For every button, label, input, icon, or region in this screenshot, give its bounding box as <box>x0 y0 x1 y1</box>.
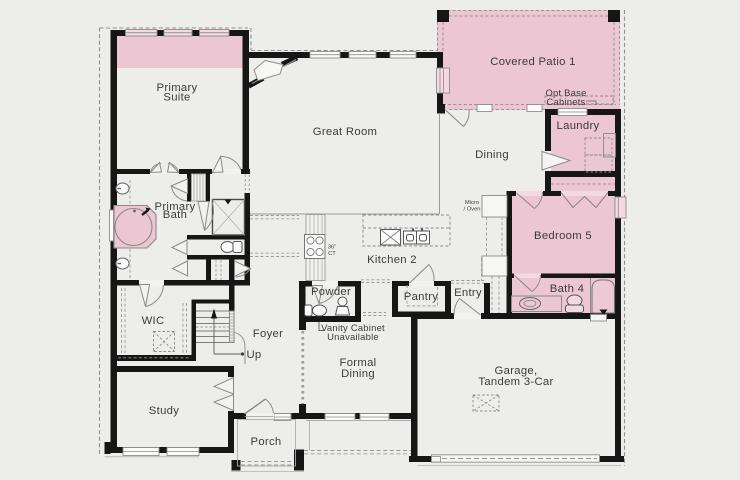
svg-text:Bath 4: Bath 4 <box>550 283 584 295</box>
svg-text:Bath: Bath <box>163 209 187 221</box>
svg-text:/ Oven: / Oven <box>463 207 480 213</box>
svg-text:WIC: WIC <box>142 315 165 327</box>
svg-text:Up: Up <box>246 349 261 361</box>
svg-text:Porch: Porch <box>250 436 281 448</box>
svg-text:Dining: Dining <box>475 149 509 161</box>
svg-text:Pantry: Pantry <box>404 291 439 303</box>
svg-text:Unavailable: Unavailable <box>327 331 379 342</box>
svg-text:Study: Study <box>149 405 179 417</box>
svg-text:Powder: Powder <box>311 286 351 298</box>
svg-text:36”: 36” <box>328 245 336 251</box>
svg-text:Dining: Dining <box>341 368 375 380</box>
svg-text:Kitchen 2: Kitchen 2 <box>367 254 417 266</box>
svg-text:Foyer: Foyer <box>253 328 283 340</box>
svg-text:Suite: Suite <box>163 92 190 104</box>
svg-text:Cabinets: Cabinets <box>546 96 585 107</box>
svg-text:Covered Patio 1: Covered Patio 1 <box>490 56 576 68</box>
svg-text:Tandem 3-Car: Tandem 3-Car <box>478 376 553 388</box>
svg-text:Micro: Micro <box>465 200 479 206</box>
svg-text:CT: CT <box>328 251 336 257</box>
svg-text:Laundry: Laundry <box>557 120 600 132</box>
svg-text:Great Room: Great Room <box>313 126 378 138</box>
svg-text:Entry: Entry <box>454 287 482 299</box>
svg-text:Bedroom 5: Bedroom 5 <box>534 230 592 242</box>
